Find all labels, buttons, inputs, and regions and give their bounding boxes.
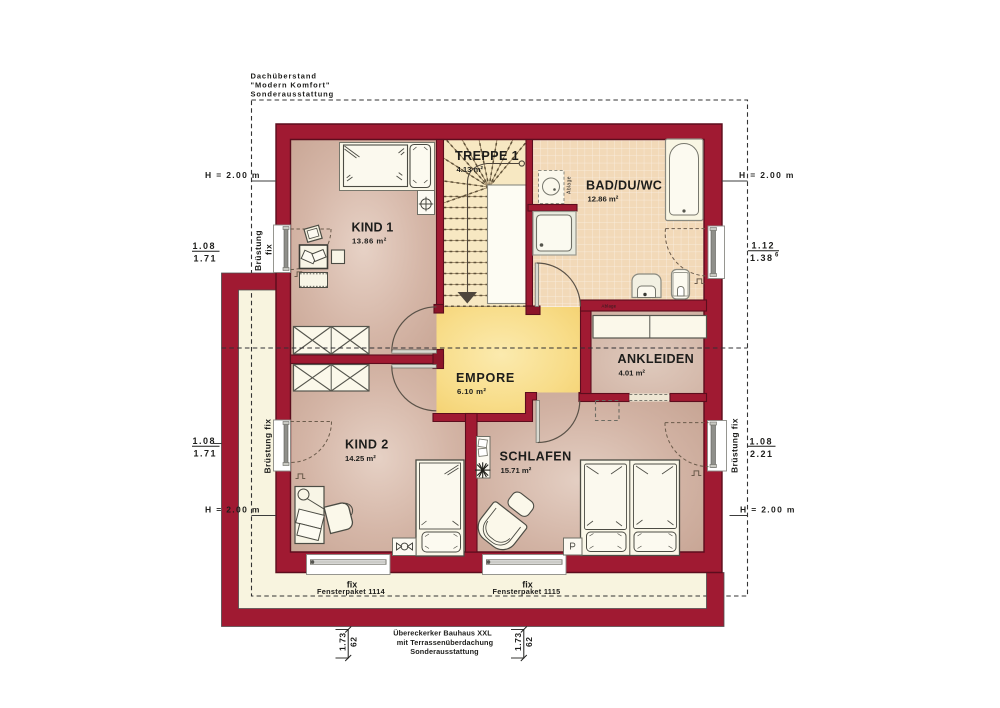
svg-text:Dachüberstand: Dachüberstand xyxy=(251,72,317,81)
svg-text:1.08: 1.08 xyxy=(193,241,217,251)
svg-text:15.71 m²: 15.71 m² xyxy=(501,466,532,475)
svg-text:13.86 m²: 13.86 m² xyxy=(352,237,387,246)
svg-text:Ablage: Ablage xyxy=(602,304,617,309)
svg-text:Übereckerker Bauhaus XXL: Übereckerker Bauhaus XXL xyxy=(393,629,492,638)
svg-text:6.10 m²: 6.10 m² xyxy=(457,387,486,396)
svg-text:Brüstung: Brüstung xyxy=(253,230,263,271)
svg-text:Ablage: Ablage xyxy=(567,176,573,194)
svg-text:1.38: 1.38 xyxy=(750,253,774,263)
svg-text:SCHLAFEN: SCHLAFEN xyxy=(500,450,572,464)
svg-text:Brüstung fix: Brüstung fix xyxy=(730,418,740,473)
svg-text:1.08: 1.08 xyxy=(193,436,217,446)
svg-text:14.25 m²: 14.25 m² xyxy=(345,454,376,463)
svg-text:Sonderausstattung: Sonderausstattung xyxy=(251,90,335,99)
svg-text:62: 62 xyxy=(349,637,359,647)
svg-text:"Modern Komfort": "Modern Komfort" xyxy=(251,81,331,90)
svg-text:62: 62 xyxy=(524,637,534,647)
svg-text:2.21: 2.21 xyxy=(750,449,774,459)
svg-text:Fensterpaket 1115: Fensterpaket 1115 xyxy=(493,587,561,596)
svg-text:fix: fix xyxy=(264,244,274,255)
svg-text:1.73: 1.73 xyxy=(513,632,523,651)
svg-text:H = 2.00 m: H = 2.00 m xyxy=(739,170,795,180)
svg-text:EMPORE: EMPORE xyxy=(456,371,515,385)
svg-text:Sonderausstattung: Sonderausstattung xyxy=(410,647,479,656)
svg-text:12.86 m²: 12.86 m² xyxy=(588,195,619,204)
svg-text:Brüstung fix: Brüstung fix xyxy=(263,419,273,474)
svg-text:1.12: 1.12 xyxy=(752,241,776,251)
svg-text:4.13 m²: 4.13 m² xyxy=(457,165,484,174)
svg-text:KIND 2: KIND 2 xyxy=(345,438,389,452)
svg-text:1.73: 1.73 xyxy=(338,632,348,651)
svg-text:ANKLEIDEN: ANKLEIDEN xyxy=(618,352,695,366)
svg-text:mit Terrassenüberdachung: mit Terrassenüberdachung xyxy=(397,638,493,647)
svg-text:KIND 1: KIND 1 xyxy=(352,221,394,235)
svg-text:H = 2.00 m: H = 2.00 m xyxy=(740,505,796,515)
svg-text:Fensterpaket 1114: Fensterpaket 1114 xyxy=(317,587,386,596)
svg-text:4.01 m²: 4.01 m² xyxy=(619,369,646,378)
svg-text:TREPPE 1: TREPPE 1 xyxy=(455,149,519,163)
svg-text:1.71: 1.71 xyxy=(194,449,218,459)
svg-text:H = 2.00 m: H = 2.00 m xyxy=(205,170,261,180)
svg-text:1.71: 1.71 xyxy=(194,254,218,264)
svg-text:H = 2.00 m: H = 2.00 m xyxy=(205,505,261,515)
svg-text:BAD/DU/WC: BAD/DU/WC xyxy=(586,179,662,193)
svg-text:1.08: 1.08 xyxy=(750,436,774,446)
